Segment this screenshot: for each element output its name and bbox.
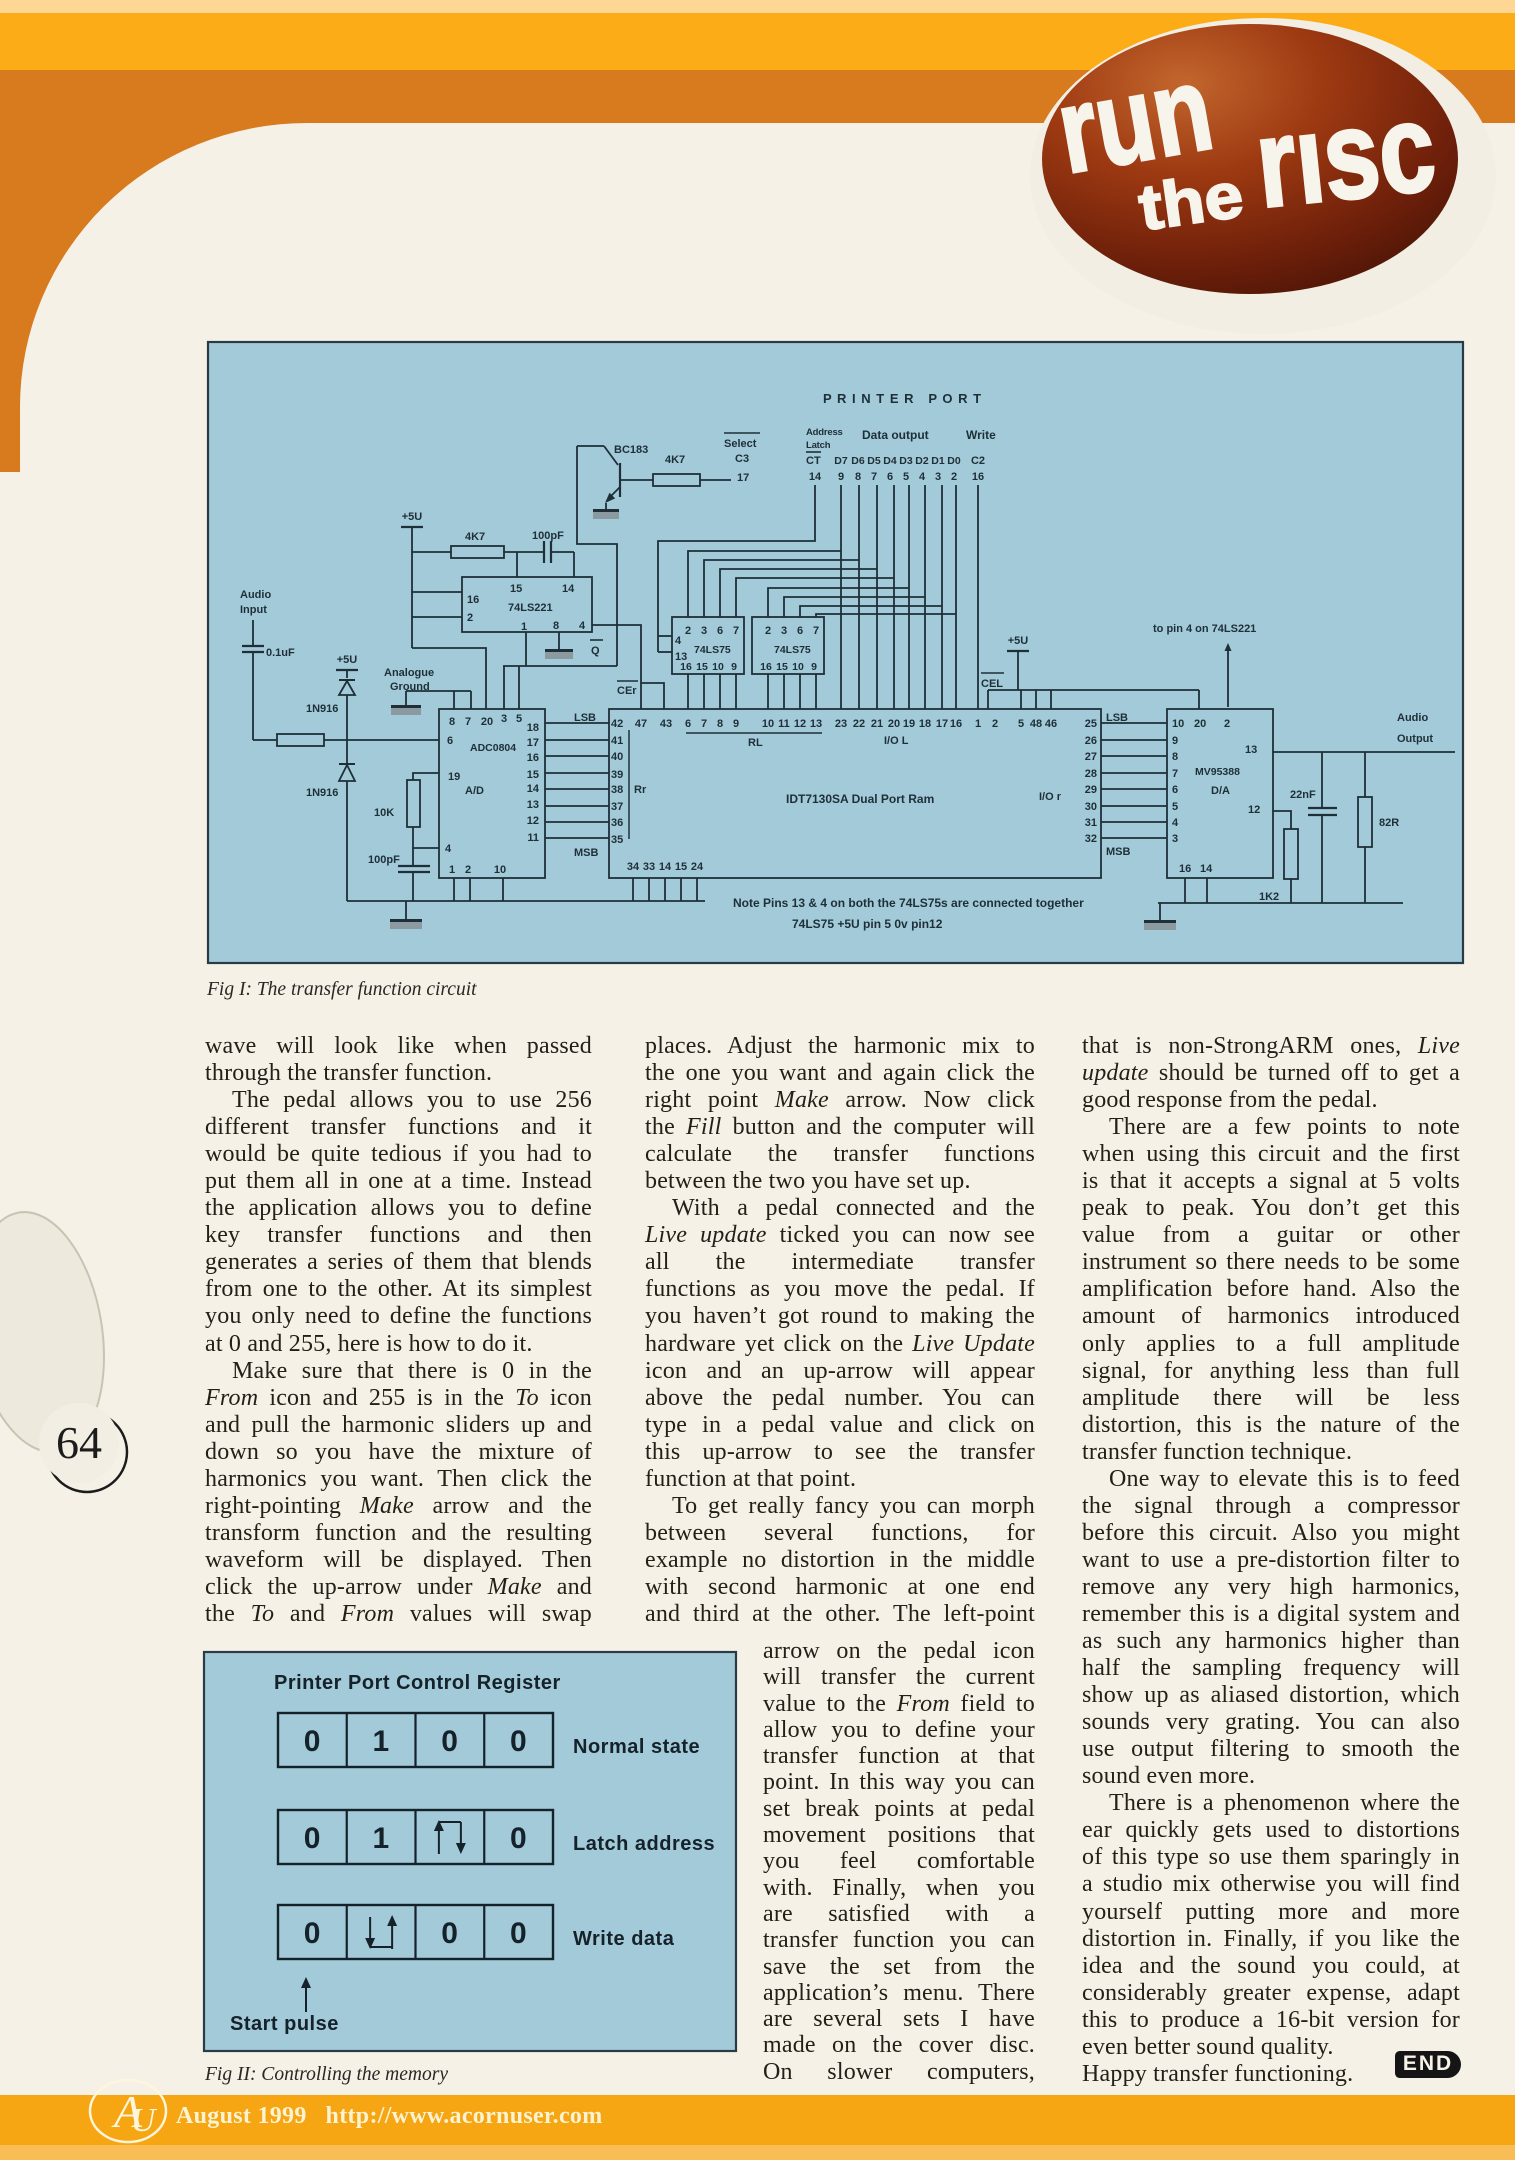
svg-text:Latch: Latch	[806, 440, 831, 451]
svg-text:10: 10	[494, 864, 506, 876]
svg-text:Select: Select	[724, 438, 757, 450]
svg-text:Analogue: Analogue	[384, 667, 434, 679]
svg-text:10: 10	[762, 718, 774, 730]
svg-text:14: 14	[562, 583, 575, 595]
svg-text:6: 6	[1172, 784, 1178, 796]
svg-text:32: 32	[1085, 833, 1097, 845]
svg-text:0: 0	[304, 1725, 321, 1758]
svg-text:D7: D7	[834, 455, 848, 467]
svg-text:3: 3	[1172, 833, 1178, 845]
svg-text:100pF: 100pF	[368, 854, 400, 866]
svg-text:46: 46	[1045, 718, 1057, 730]
svg-text:6: 6	[447, 735, 453, 747]
svg-text:Printer Port Control Register: Printer Port Control Register	[274, 1672, 561, 1694]
svg-text:D2: D2	[915, 455, 929, 467]
svg-text:9: 9	[1172, 735, 1178, 747]
svg-text:CEr: CEr	[617, 685, 637, 697]
svg-text:42: 42	[611, 718, 623, 730]
svg-text:13: 13	[675, 651, 687, 663]
svg-text:0: 0	[441, 1725, 458, 1758]
svg-text:13: 13	[810, 718, 822, 730]
svg-text:20: 20	[1194, 718, 1206, 730]
svg-text:22nF: 22nF	[1290, 789, 1316, 801]
svg-text:16: 16	[760, 661, 772, 673]
svg-text:5: 5	[903, 471, 909, 483]
svg-text:8: 8	[717, 718, 723, 730]
svg-text:19: 19	[903, 718, 915, 730]
svg-text:15: 15	[776, 661, 788, 673]
svg-text:14: 14	[809, 471, 822, 483]
svg-text:30: 30	[1085, 801, 1097, 813]
svg-text:MSB: MSB	[1106, 846, 1131, 858]
svg-text:1: 1	[521, 621, 527, 633]
svg-text:64: 64	[56, 1417, 102, 1468]
svg-text:14: 14	[1200, 863, 1213, 875]
svg-text:C3: C3	[735, 453, 749, 465]
svg-text:D0: D0	[947, 455, 961, 467]
svg-text:18: 18	[919, 718, 931, 730]
svg-text:48: 48	[1030, 718, 1042, 730]
svg-text:+5U: +5U	[337, 654, 358, 666]
svg-text:74LS75: 74LS75	[774, 644, 811, 656]
svg-text:0: 0	[441, 1917, 458, 1950]
svg-text:4K7: 4K7	[465, 531, 485, 543]
svg-text:21: 21	[871, 718, 883, 730]
svg-text:10: 10	[712, 661, 724, 673]
svg-text:Input: Input	[240, 604, 267, 616]
svg-text:20: 20	[481, 716, 493, 728]
svg-text:11: 11	[527, 832, 539, 844]
svg-text:2: 2	[765, 625, 771, 637]
svg-text:9: 9	[731, 661, 737, 673]
svg-text:I/O r: I/O r	[1039, 791, 1062, 803]
svg-text:Data output: Data output	[862, 428, 929, 442]
svg-text:0: 0	[510, 1917, 527, 1950]
svg-text:82R: 82R	[1379, 817, 1399, 829]
svg-text:Q: Q	[591, 645, 600, 657]
svg-text:10: 10	[792, 661, 804, 673]
svg-text:13: 13	[1245, 744, 1257, 756]
svg-text:1: 1	[373, 1725, 390, 1758]
svg-text:22: 22	[853, 718, 865, 730]
svg-text:A/D: A/D	[465, 785, 484, 797]
svg-text:43: 43	[660, 718, 672, 730]
svg-text:35: 35	[611, 834, 623, 846]
svg-text:7: 7	[701, 718, 707, 730]
svg-text:100pF: 100pF	[532, 530, 564, 542]
svg-text:1: 1	[975, 718, 981, 730]
svg-text:10K: 10K	[374, 807, 394, 819]
svg-text:9: 9	[838, 471, 844, 483]
svg-text:16: 16	[972, 471, 984, 483]
svg-text:6: 6	[797, 625, 803, 637]
svg-text:the: the	[1134, 158, 1247, 244]
svg-text:16: 16	[1179, 863, 1191, 875]
svg-text:16: 16	[950, 718, 962, 730]
svg-text:Note Pins 13 & 4 on both the 7: Note Pins 13 & 4 on both the 74LS75s are…	[733, 896, 1084, 910]
svg-text:4: 4	[579, 620, 586, 632]
svg-text:2: 2	[951, 471, 957, 483]
svg-text:IDT7130SA Dual Port Ram: IDT7130SA Dual Port Ram	[786, 792, 934, 806]
svg-text:34: 34	[627, 861, 640, 873]
svg-text:LSB: LSB	[574, 712, 596, 724]
svg-text:6: 6	[887, 471, 893, 483]
svg-text:BC183: BC183	[614, 444, 648, 456]
svg-text:4: 4	[1172, 817, 1179, 829]
svg-text:Audio: Audio	[240, 589, 271, 601]
svg-text:MV95388: MV95388	[1195, 766, 1240, 778]
svg-text:3: 3	[781, 625, 787, 637]
svg-text:17: 17	[527, 737, 539, 749]
svg-text:4: 4	[445, 843, 452, 855]
svg-text:39: 39	[611, 769, 623, 781]
svg-text:2: 2	[685, 625, 691, 637]
svg-text:U: U	[131, 2102, 158, 2139]
svg-text:CEL: CEL	[981, 678, 1003, 690]
svg-text:D6: D6	[851, 455, 865, 467]
svg-text:4K7: 4K7	[665, 454, 685, 466]
svg-text:0: 0	[304, 1822, 321, 1855]
svg-text:74LS221: 74LS221	[508, 602, 553, 614]
svg-text:2: 2	[1224, 718, 1230, 730]
svg-text:41: 41	[611, 735, 623, 747]
svg-text:19: 19	[448, 771, 460, 783]
svg-text:11: 11	[778, 718, 790, 730]
svg-text:7: 7	[465, 716, 471, 728]
svg-text:16: 16	[527, 752, 539, 764]
svg-text:rısc: rısc	[1250, 77, 1442, 234]
svg-text:+5U: +5U	[402, 511, 423, 523]
svg-text:D/A: D/A	[1211, 785, 1230, 797]
svg-text:D5: D5	[867, 455, 881, 467]
svg-text:74LS75 +5U pin 5 0v pin12: 74LS75 +5U pin 5 0v pin12	[792, 917, 943, 931]
svg-text:6: 6	[685, 718, 691, 730]
svg-text:14: 14	[659, 861, 672, 873]
svg-text:MSB: MSB	[574, 847, 599, 859]
svg-text:C2: C2	[971, 455, 985, 467]
svg-text:16: 16	[467, 594, 479, 606]
svg-text:28: 28	[1085, 768, 1097, 780]
svg-text:Latch address: Latch address	[573, 1833, 715, 1855]
svg-text:7: 7	[871, 471, 877, 483]
svg-text:15: 15	[527, 769, 539, 781]
svg-text:1: 1	[449, 864, 455, 876]
svg-text:1N916: 1N916	[306, 787, 338, 799]
svg-text:7: 7	[1172, 768, 1178, 780]
svg-text:27: 27	[1085, 751, 1097, 763]
svg-text:Rr: Rr	[634, 784, 647, 796]
svg-text:15: 15	[675, 861, 687, 873]
svg-text:7: 7	[733, 625, 739, 637]
svg-text:RL: RL	[748, 737, 763, 749]
svg-text:0: 0	[304, 1917, 321, 1950]
svg-text:CT: CT	[806, 455, 821, 467]
svg-text:3: 3	[935, 471, 941, 483]
svg-text:1N916: 1N916	[306, 703, 338, 715]
svg-text:5: 5	[1172, 801, 1178, 813]
svg-text:8: 8	[855, 471, 861, 483]
svg-text:5: 5	[516, 713, 522, 725]
svg-text:14: 14	[527, 783, 540, 795]
svg-text:2: 2	[465, 864, 471, 876]
svg-text:3: 3	[501, 713, 507, 725]
svg-text:Audio: Audio	[1397, 712, 1428, 724]
svg-text:23: 23	[835, 718, 847, 730]
svg-text:17: 17	[737, 472, 749, 484]
svg-text:2: 2	[467, 612, 473, 624]
svg-text:9: 9	[733, 718, 739, 730]
svg-text:8: 8	[449, 716, 455, 728]
svg-text:12: 12	[527, 815, 539, 827]
svg-text:P R I N T E R P O R T: P R I N T E R P O R T	[823, 391, 982, 406]
svg-text:7: 7	[813, 625, 819, 637]
svg-text:15: 15	[510, 583, 522, 595]
svg-text:Output: Output	[1397, 733, 1433, 745]
svg-text:ADC0804: ADC0804	[470, 742, 516, 754]
svg-text:24: 24	[691, 861, 704, 873]
svg-text:36: 36	[611, 817, 623, 829]
svg-text:5: 5	[1018, 718, 1024, 730]
svg-text:31: 31	[1085, 817, 1097, 829]
svg-text:15: 15	[696, 661, 708, 673]
svg-text:29: 29	[1085, 784, 1097, 796]
svg-text:Normal state: Normal state	[573, 1736, 700, 1758]
svg-text:8: 8	[1172, 751, 1178, 763]
svg-text:Write: Write	[966, 428, 996, 442]
svg-text:38: 38	[611, 784, 623, 796]
svg-text:0: 0	[510, 1822, 527, 1855]
svg-text:2: 2	[992, 718, 998, 730]
svg-text:18: 18	[527, 722, 539, 734]
svg-text:to pin 4 on 74LS221: to pin 4 on 74LS221	[1153, 623, 1256, 635]
svg-text:12: 12	[794, 718, 806, 730]
svg-text:12: 12	[1248, 804, 1260, 816]
svg-text:Start pulse: Start pulse	[230, 2013, 339, 2035]
svg-text:I/O L: I/O L	[884, 735, 909, 747]
svg-text:74LS75: 74LS75	[694, 644, 731, 656]
svg-text:6: 6	[717, 625, 723, 637]
svg-text:0: 0	[510, 1725, 527, 1758]
svg-text:D4: D4	[883, 455, 897, 467]
svg-text:10: 10	[1172, 718, 1184, 730]
svg-text:47: 47	[635, 718, 647, 730]
svg-text:25: 25	[1085, 718, 1097, 730]
svg-text:0.1uF: 0.1uF	[266, 647, 295, 659]
svg-text:4: 4	[675, 635, 682, 647]
svg-text:40: 40	[611, 751, 623, 763]
svg-text:8: 8	[553, 620, 559, 632]
svg-text:13: 13	[527, 799, 539, 811]
svg-text:20: 20	[888, 718, 900, 730]
svg-text:1K2: 1K2	[1259, 891, 1279, 903]
svg-text:Address: Address	[806, 427, 843, 438]
svg-text:33: 33	[643, 861, 655, 873]
svg-text:17: 17	[936, 718, 948, 730]
svg-text:26: 26	[1085, 735, 1097, 747]
svg-text:D3: D3	[899, 455, 913, 467]
svg-text:3: 3	[701, 625, 707, 637]
svg-text:Write data: Write data	[573, 1928, 675, 1950]
svg-text:D1: D1	[931, 455, 945, 467]
svg-text:9: 9	[811, 661, 817, 673]
svg-text:4: 4	[919, 471, 926, 483]
svg-text:+5U: +5U	[1008, 635, 1029, 647]
svg-text:1: 1	[373, 1822, 390, 1855]
svg-text:37: 37	[611, 801, 623, 813]
